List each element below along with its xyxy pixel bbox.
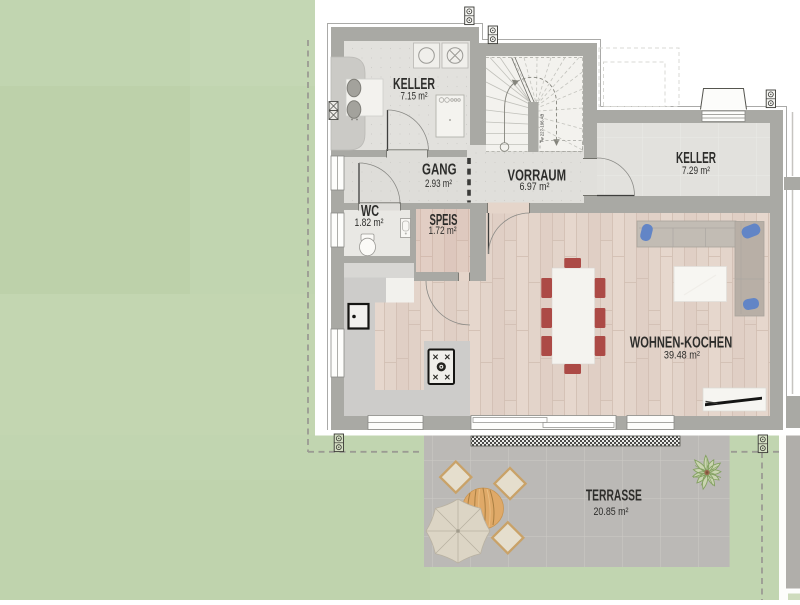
- svg-text:20.85 m²: 20.85 m²: [594, 506, 629, 518]
- svg-text:39.48 m²: 39.48 m²: [664, 350, 700, 362]
- svg-text:2.93 m²: 2.93 m²: [425, 178, 452, 190]
- svg-text:1.72 m²: 1.72 m²: [429, 225, 457, 237]
- svg-text:6.97 m²: 6.97 m²: [520, 181, 550, 193]
- svg-text:7.29 m²: 7.29 m²: [682, 165, 710, 177]
- svg-text:GANG: GANG: [422, 162, 457, 179]
- svg-text:TERRASSE: TERRASSE: [586, 488, 642, 505]
- svg-text:1.82 m²: 1.82 m²: [355, 217, 384, 229]
- svg-text:7.15 m²: 7.15 m²: [401, 91, 428, 103]
- svg-text:Tw 227-196 AB: Tw 227-196 AB: [540, 114, 545, 143]
